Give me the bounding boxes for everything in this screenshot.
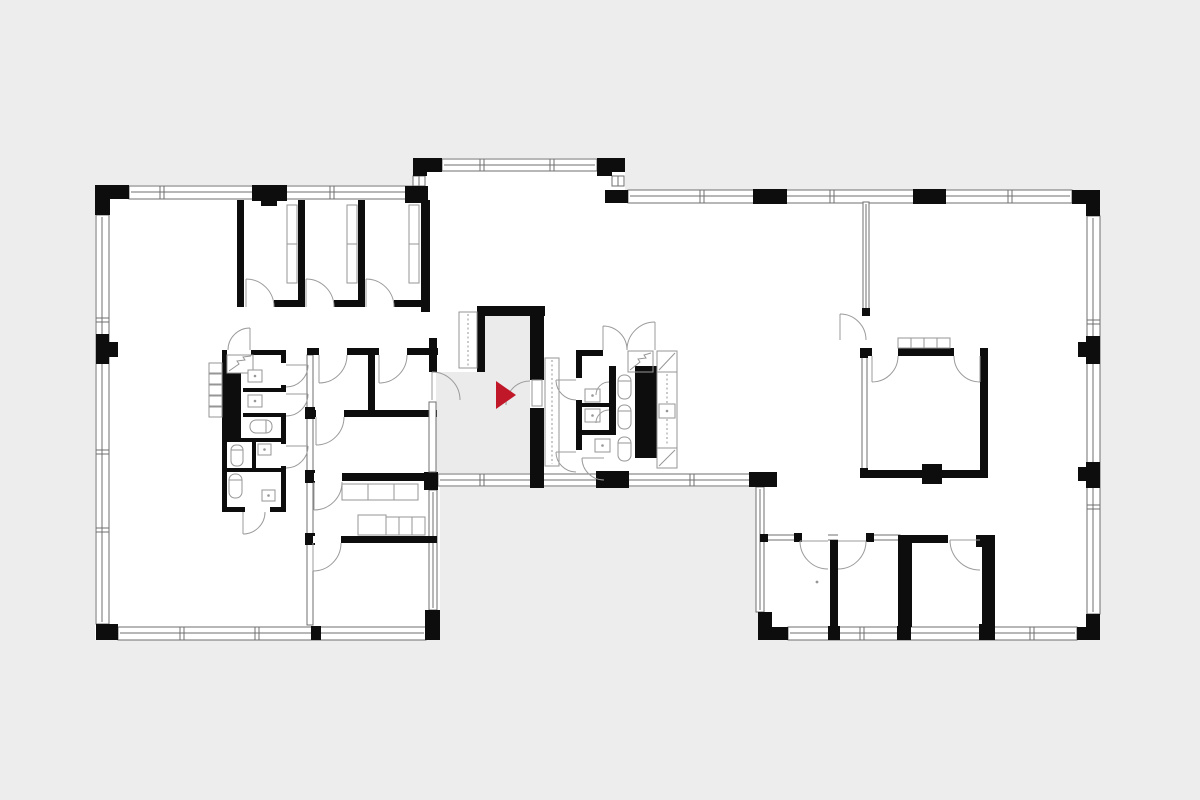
floor-plan-page xyxy=(0,0,1200,800)
toilet-icon xyxy=(618,375,631,461)
point-marker xyxy=(816,581,819,584)
floor-plan-drawing xyxy=(0,0,1200,800)
